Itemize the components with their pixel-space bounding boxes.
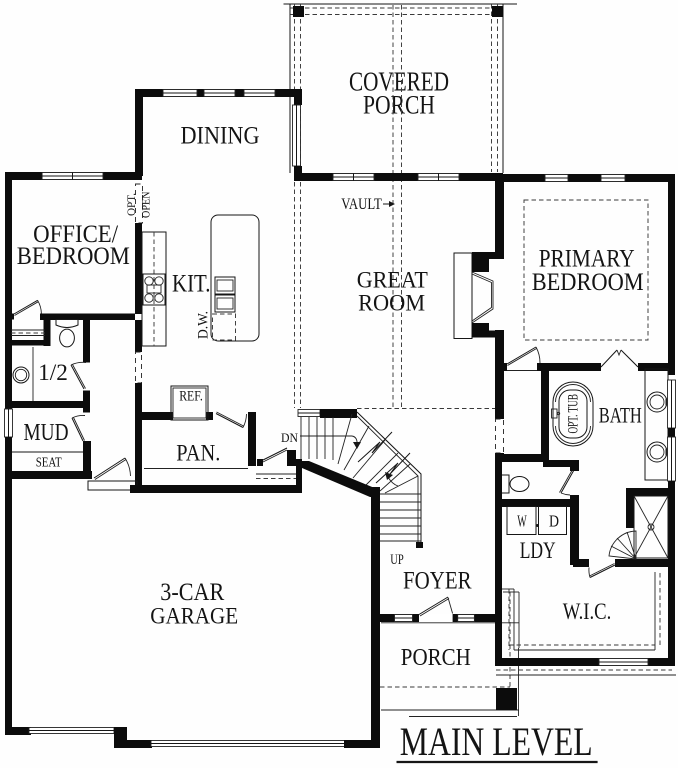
svg-text:BEDROOM: BEDROOM bbox=[17, 243, 130, 270]
svg-text:OPT.: OPT. bbox=[124, 193, 138, 216]
svg-text:MAIN LEVEL: MAIN LEVEL bbox=[400, 719, 593, 764]
svg-text:REF.: REF. bbox=[179, 389, 203, 405]
svg-text:1/2: 1/2 bbox=[38, 360, 68, 385]
svg-text:D: D bbox=[549, 511, 559, 530]
svg-text:UP: UP bbox=[390, 552, 404, 568]
svg-text:LDY: LDY bbox=[520, 538, 556, 564]
svg-text:DINING: DINING bbox=[181, 122, 260, 149]
svg-text:W.I.C.: W.I.C. bbox=[563, 599, 612, 625]
svg-text:MUD: MUD bbox=[24, 420, 69, 446]
svg-text:DN: DN bbox=[281, 430, 299, 445]
svg-text:PAN.: PAN. bbox=[176, 440, 220, 466]
svg-text:BEDROOM: BEDROOM bbox=[532, 268, 644, 296]
svg-text:3-CAR: 3-CAR bbox=[160, 579, 224, 606]
svg-text:OPEN: OPEN bbox=[139, 191, 153, 218]
svg-text:FOYER: FOYER bbox=[403, 565, 472, 594]
svg-text:SEAT: SEAT bbox=[36, 455, 62, 470]
svg-text:OPT. TUB: OPT. TUB bbox=[566, 394, 582, 434]
svg-text:BATH: BATH bbox=[599, 403, 642, 428]
svg-text:GREAT: GREAT bbox=[357, 267, 429, 293]
svg-text:VAULT: VAULT bbox=[341, 195, 382, 213]
svg-text:PORCH: PORCH bbox=[363, 91, 435, 120]
svg-text:D.W.: D.W. bbox=[196, 311, 212, 339]
svg-text:GARAGE: GARAGE bbox=[150, 603, 238, 629]
svg-text:PORCH: PORCH bbox=[401, 644, 471, 671]
svg-text:W: W bbox=[517, 511, 527, 530]
svg-text:ROOM: ROOM bbox=[358, 290, 425, 316]
svg-text:KIT.: KIT. bbox=[172, 269, 211, 297]
